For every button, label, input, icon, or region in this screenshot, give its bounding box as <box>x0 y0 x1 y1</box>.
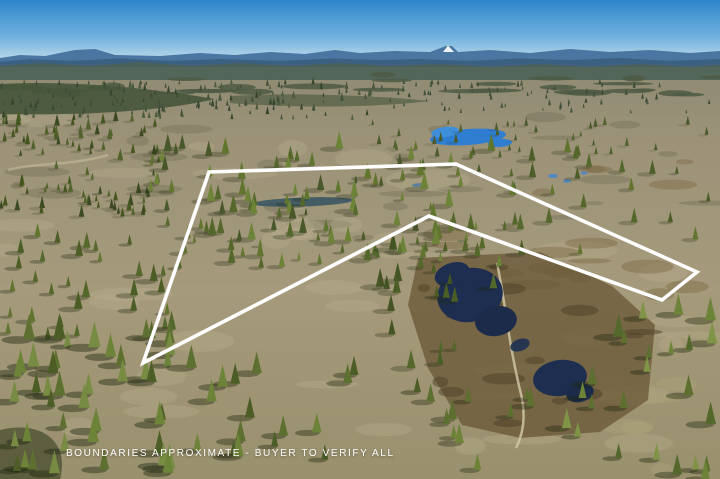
boundary-disclaimer-text: BOUNDARIES APPROXIMATE - BUYER TO VERIFY… <box>66 448 395 459</box>
scene-canvas <box>0 0 720 479</box>
aerial-photo: BOUNDARIES APPROXIMATE - BUYER TO VERIFY… <box>0 0 720 479</box>
landscape-layers <box>0 0 720 479</box>
